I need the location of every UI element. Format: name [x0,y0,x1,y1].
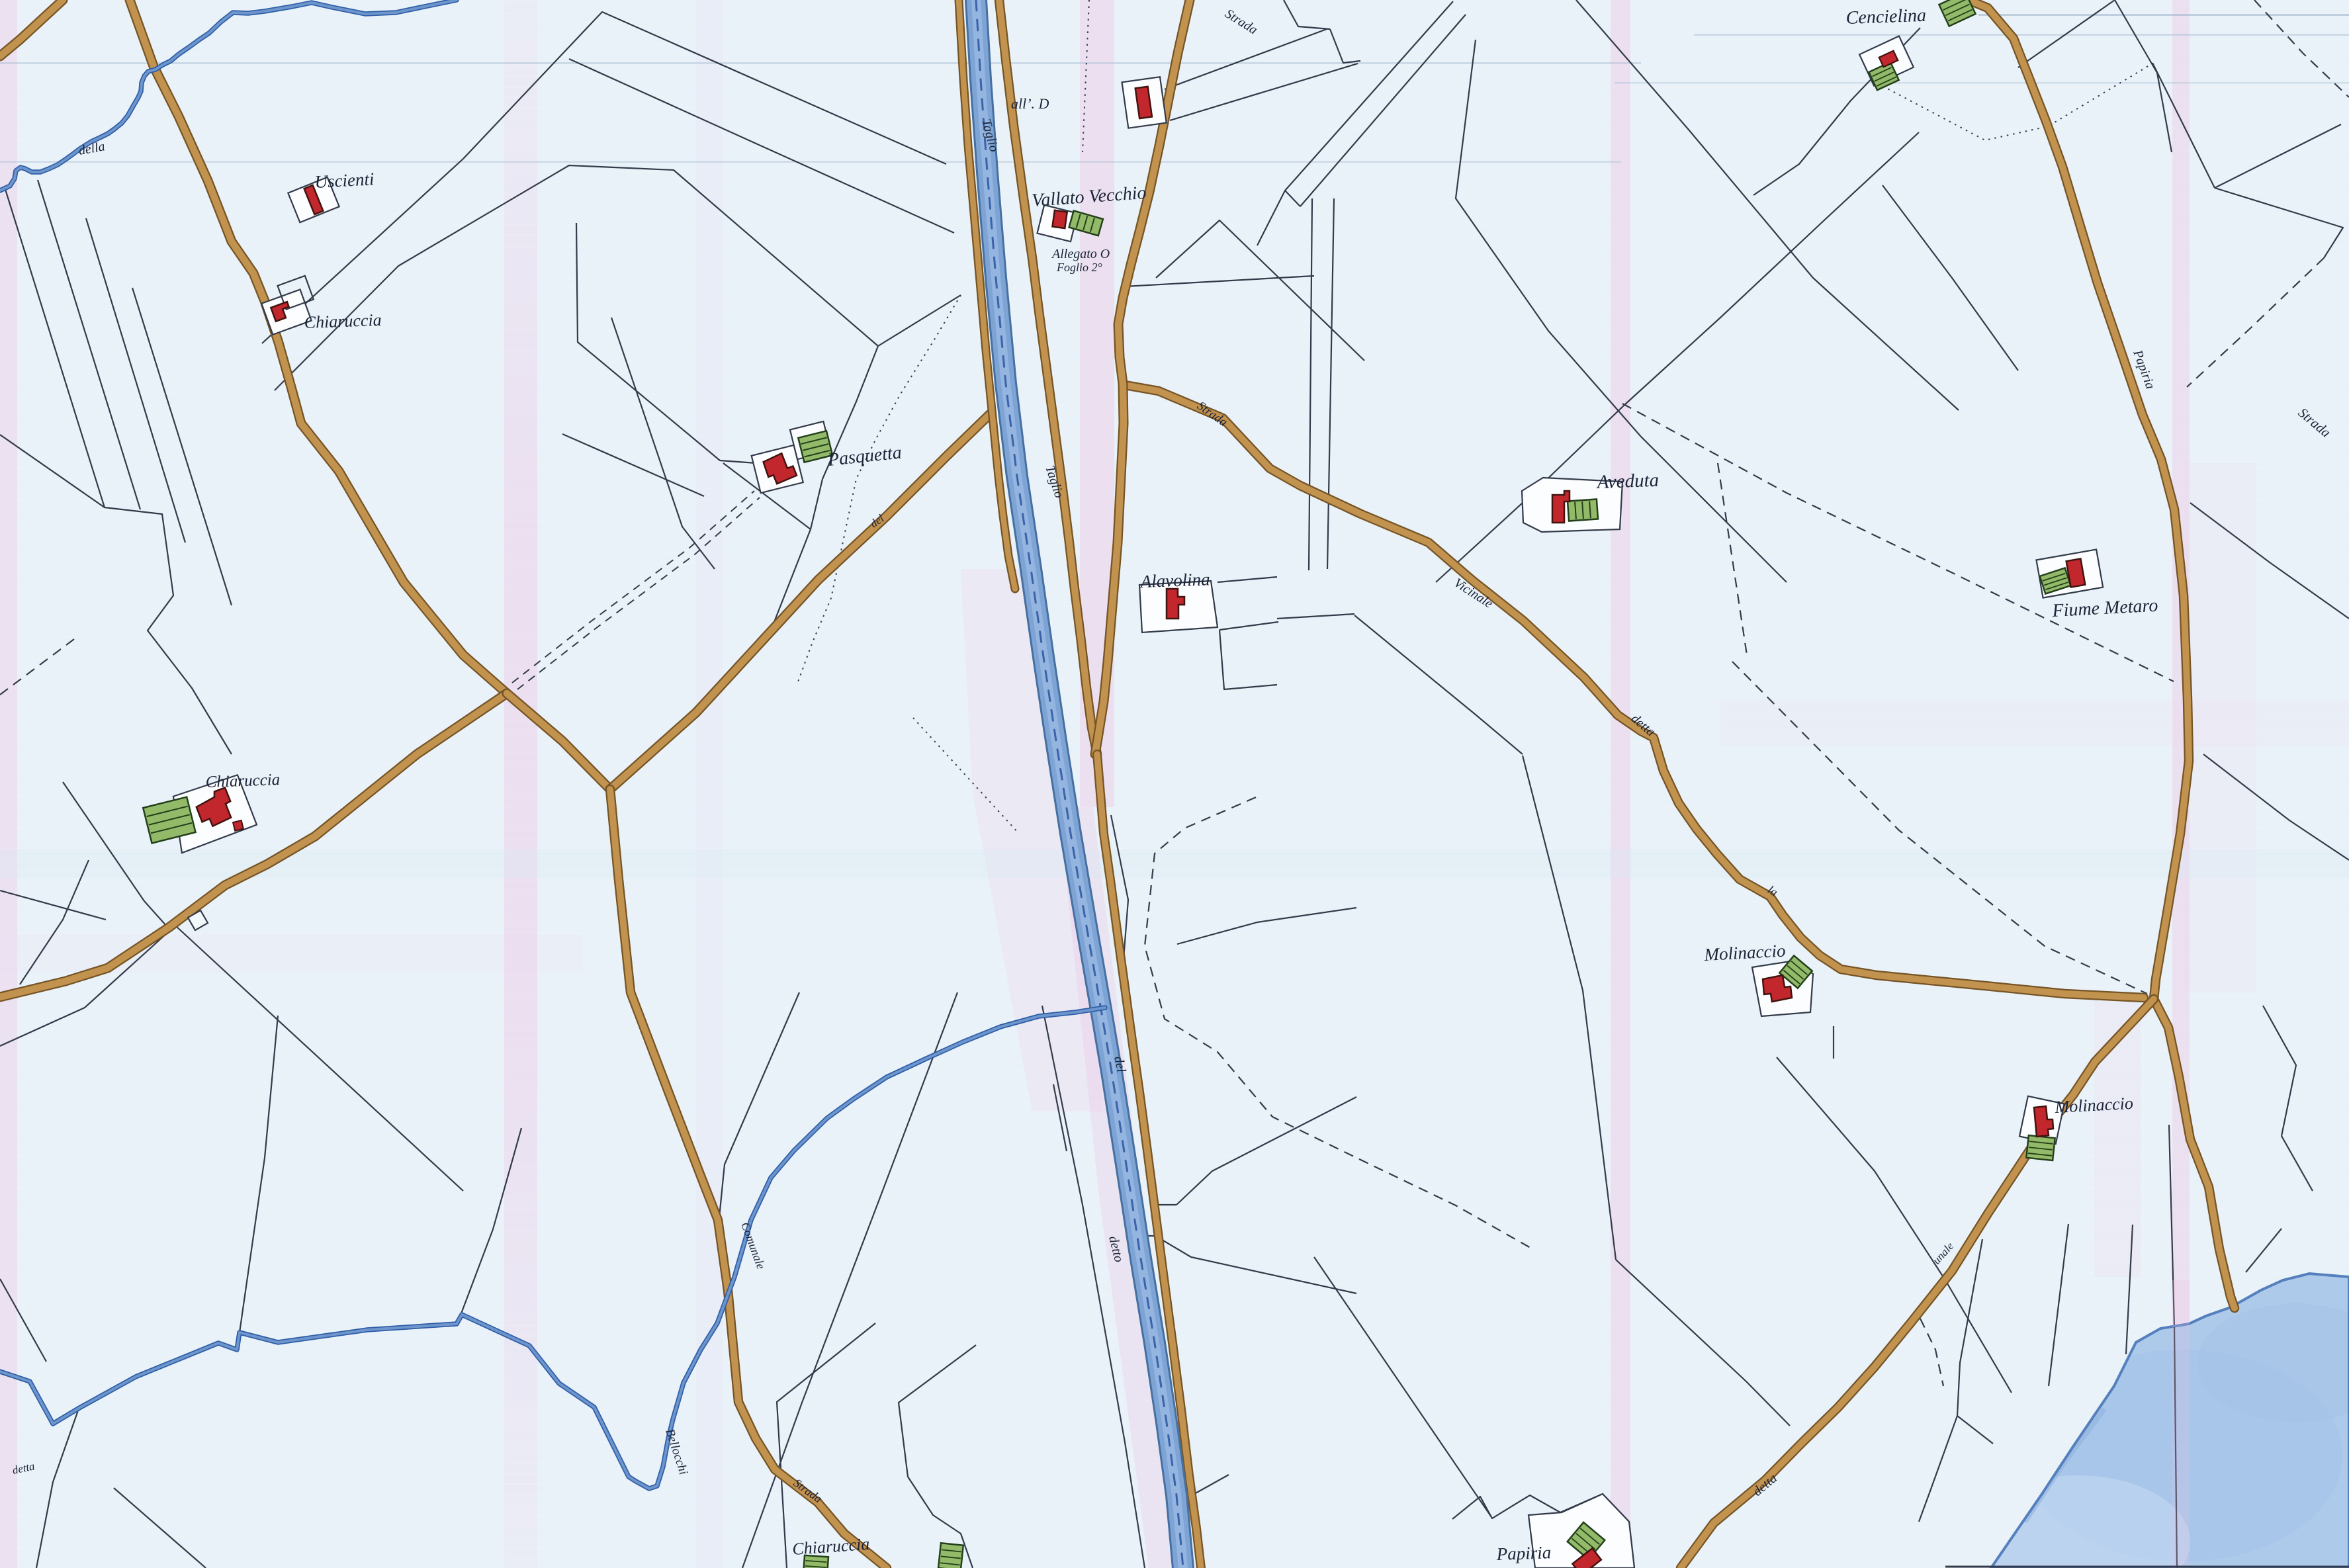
svg-text:Alavolina: Alavolina [1139,569,1210,591]
svg-text:Aveduta: Aveduta [1595,470,1659,493]
svg-text:Uscienti: Uscienti [314,169,375,192]
svg-text:Chiaruccia: Chiaruccia [205,771,280,791]
svg-text:Chiaruccia: Chiaruccia [304,310,382,332]
svg-text:Papiria: Papiria [1495,1542,1552,1564]
svg-text:Cencielina: Cencielina [1845,5,1926,28]
svg-text:all’. D: all’. D [1011,95,1049,112]
svg-text:Foglio 2°: Foglio 2° [1056,261,1102,274]
svg-text:Allegato O: Allegato O [1051,247,1110,261]
